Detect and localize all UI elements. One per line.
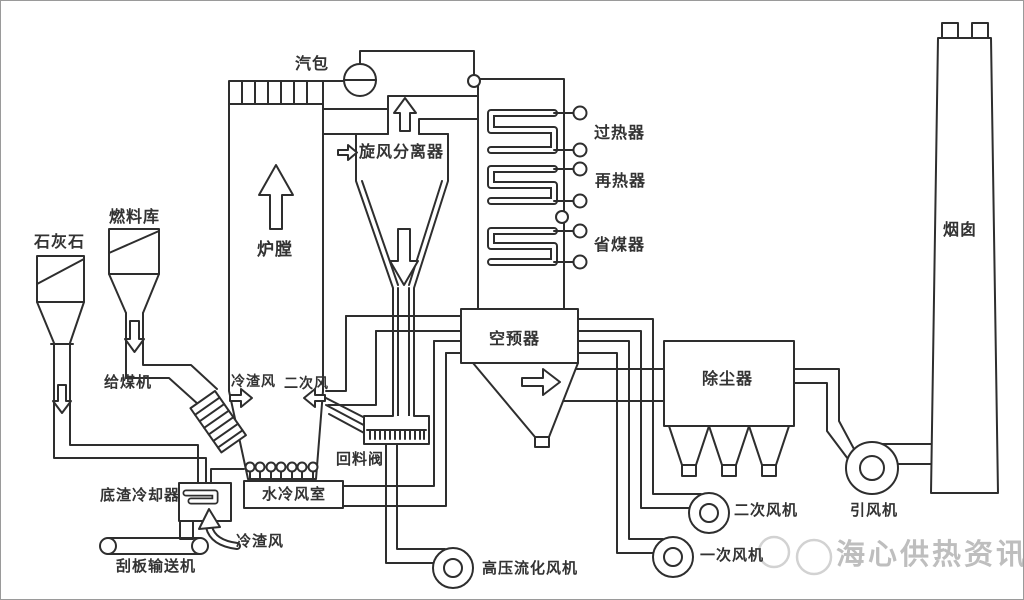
secondary-air-fan-icon <box>689 493 729 533</box>
label-cold-slag-air-duct: 冷渣风 <box>236 534 284 551</box>
label-reheater: 再热器 <box>595 173 646 191</box>
economizer-coil <box>491 225 587 269</box>
dust-collector <box>664 341 794 476</box>
fuel-bunker-silo <box>109 229 159 313</box>
label-hp-fluidizing-fan: 高压流化风机 <box>482 561 578 578</box>
limestone-silo <box>37 256 84 344</box>
steam-drum <box>344 64 480 96</box>
primary-air-fan-icon <box>653 537 693 577</box>
label-steam-drum: 汽包 <box>295 56 329 74</box>
reheater-coil <box>491 163 587 208</box>
hp-fluidizing-air-pipe <box>386 444 445 563</box>
hp-fluidizing-fan-icon <box>433 548 473 588</box>
return-valve <box>364 416 429 444</box>
label-secondary-air-inlet: 二次风 <box>284 376 329 391</box>
cfb-boiler-diagram: 汽包 旋风分离器 过热器 再热器 省煤器 炉膛 石灰石 燃料库 给煤机 冷渣风 … <box>0 0 1024 600</box>
label-return-valve: 回料阀 <box>336 452 384 469</box>
label-induced-draft-fan: 引风机 <box>850 503 898 520</box>
label-primary-air-fan: 一次风机 <box>700 548 764 565</box>
label-furnace: 炉膛 <box>257 241 293 260</box>
label-fuel-bunker: 燃料库 <box>109 209 160 227</box>
label-coal-feeder: 给煤机 <box>104 375 152 392</box>
label-economizer: 省煤器 <box>594 237 645 255</box>
scraper-conveyor <box>100 538 208 554</box>
air-preheater <box>461 309 578 447</box>
fuel-pipe-down-arrow <box>125 321 144 352</box>
wall-connection-node <box>556 211 568 223</box>
cyclone-outlet-up-arrow <box>394 98 416 131</box>
label-chimney: 烟囱 <box>943 222 977 240</box>
chimney-stack <box>931 23 998 493</box>
bottom-slag-cooler <box>179 483 231 539</box>
limestone-pipe-down-arrow <box>53 385 71 413</box>
label-windbox: 水冷风室 <box>262 487 326 504</box>
pipe-junction-node <box>468 75 480 87</box>
slag-drop-step <box>211 469 244 483</box>
label-cold-slag-air-inlet: 冷渣风 <box>231 374 276 389</box>
label-cyclone-separator: 旋风分离器 <box>359 144 444 162</box>
superheater-coil <box>491 107 587 157</box>
label-secondary-air-fan: 二次风机 <box>734 503 798 520</box>
label-air-preheater: 空预器 <box>489 331 540 349</box>
label-bottom-slag-cooler: 底渣冷却器 <box>100 488 180 505</box>
flue-duct-to-dust-collector <box>564 369 664 401</box>
watermark-icons <box>759 537 831 574</box>
cyclone-label-arrow <box>338 145 357 160</box>
watermark-text: 海心供热资讯 <box>836 531 1024 573</box>
induced-draft-fan-icon <box>846 442 898 494</box>
label-superheater: 过热器 <box>594 125 645 143</box>
furnace-body <box>229 81 323 479</box>
label-limestone: 石灰石 <box>34 234 85 252</box>
preheater-exit-right-arrow <box>522 369 560 395</box>
flue-duct-to-id-fan <box>794 369 854 459</box>
label-scraper-conveyor: 刮板输送机 <box>116 559 196 576</box>
label-dust-collector: 除尘器 <box>702 371 753 389</box>
